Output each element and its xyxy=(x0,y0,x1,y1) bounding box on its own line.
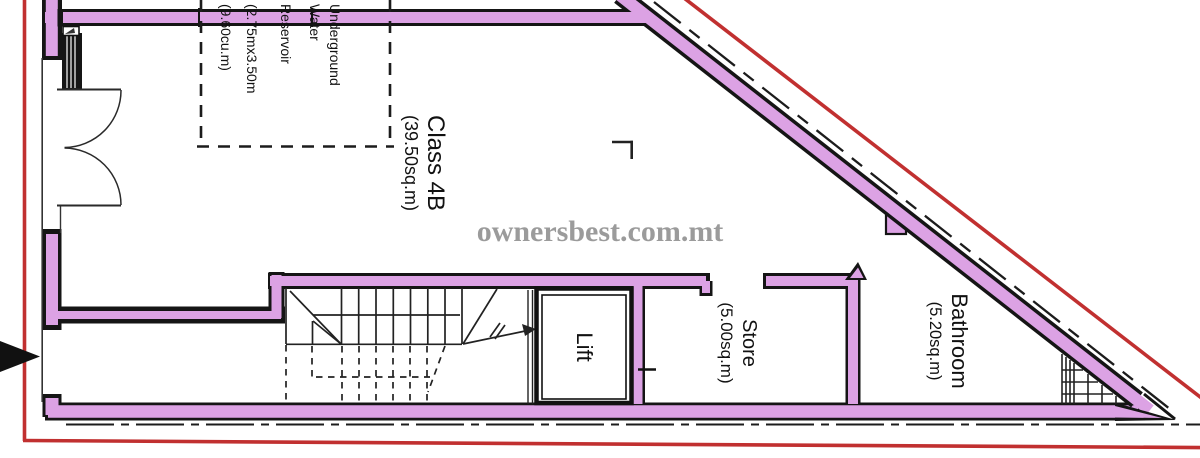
svg-text:Reservoir: Reservoir xyxy=(278,4,294,64)
svg-text:Store: Store xyxy=(738,319,760,367)
svg-text:Water: Water xyxy=(307,4,323,41)
svg-text:(9.60cu.m): (9.60cu.m) xyxy=(218,4,234,71)
svg-text:(5.00sq.m): (5.00sq.m) xyxy=(717,302,736,383)
svg-text:Lift: Lift xyxy=(572,332,597,361)
svg-text:(2.75mx3.50m: (2.75mx3.50m xyxy=(244,4,260,93)
svg-text:(5.20sq.m): (5.20sq.m) xyxy=(926,302,944,381)
svg-text:Bathroom: Bathroom xyxy=(947,293,972,388)
svg-text:(39.50sq.m): (39.50sq.m) xyxy=(401,115,421,211)
svg-text:Underground: Underground xyxy=(327,4,343,86)
svg-text:ownersbest.com.mt: ownersbest.com.mt xyxy=(477,215,724,248)
svg-text:Class 4B: Class 4B xyxy=(422,115,449,211)
